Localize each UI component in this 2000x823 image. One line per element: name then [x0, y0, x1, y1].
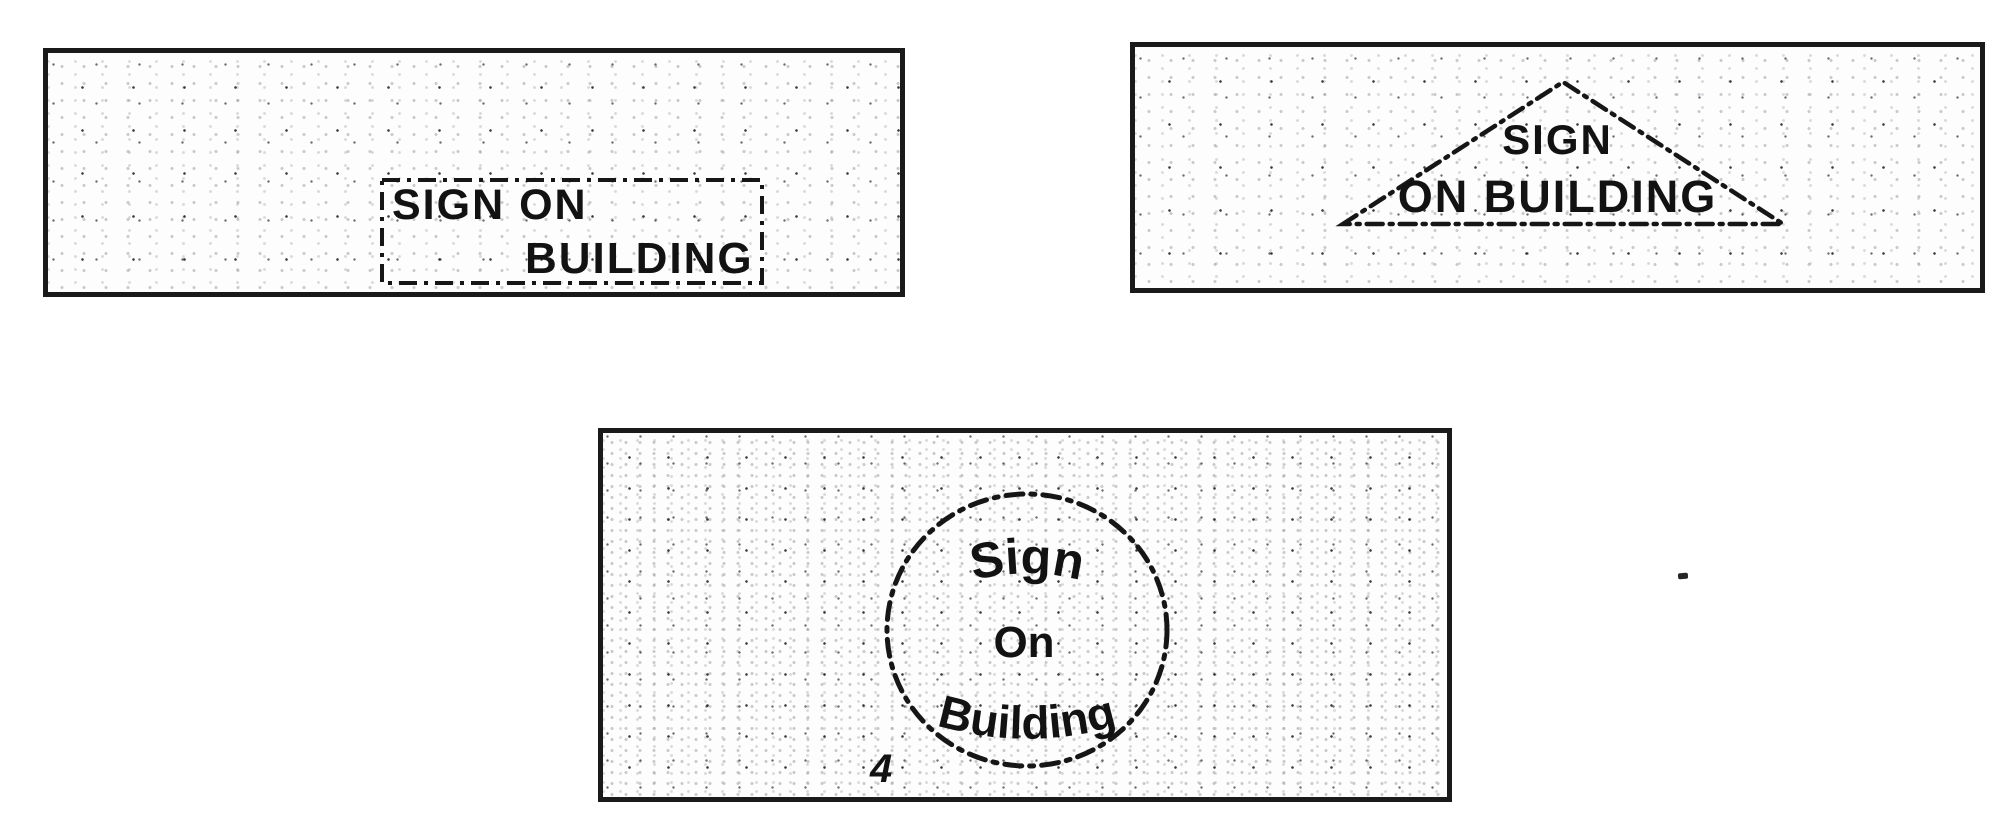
panel-rectangle-option: SIGN ON BUILDING — [43, 48, 905, 297]
circle-sign-word-bottom: Building — [934, 685, 1121, 749]
panel-circle-option: Sign On Building 4 — [598, 428, 1452, 802]
triangle-sign-text-line1: SIGN — [1135, 119, 1980, 161]
reference-numeral-4: 4 — [870, 749, 892, 789]
dash-dot-rectangle — [48, 53, 900, 292]
rectangle-sign-text-line1: SIGN ON — [392, 184, 588, 227]
circle-sign-word-top: Sign — [965, 528, 1088, 590]
scanned-figure-page: SIGN ON BUILDING SIGN ON BUILDING Sign O… — [0, 0, 2000, 823]
dash-dot-triangle — [1135, 47, 1980, 288]
dash-dot-circle: Sign On Building — [603, 433, 1447, 797]
circle-sign-word-middle: On — [993, 618, 1054, 667]
ink-speck — [1678, 573, 1688, 580]
panel-triangle-option: SIGN ON BUILDING — [1130, 42, 1985, 293]
rectangle-sign-text-line2: BUILDING — [525, 237, 754, 281]
triangle-sign-text-line2: ON BUILDING — [1135, 174, 1980, 219]
